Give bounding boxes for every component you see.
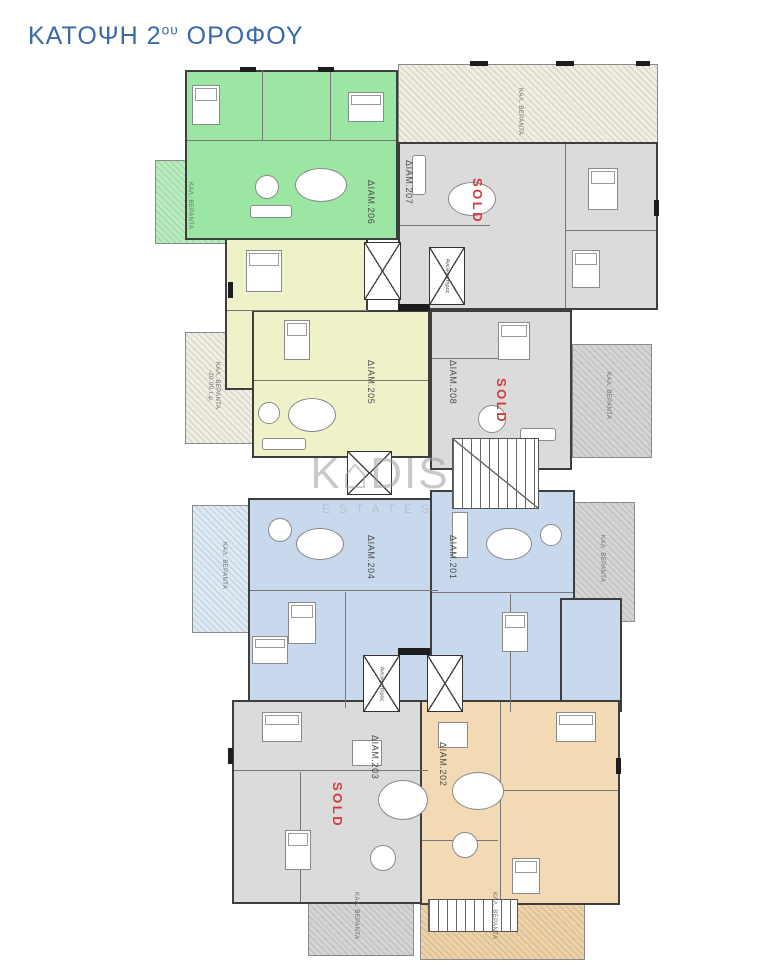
veranda-label-205: ΚΑΛ. ΒΕΡΑΝΤΑ-20.00 τ.μ. xyxy=(206,362,220,409)
sofa xyxy=(262,438,306,450)
elevator-shaft: Ανελκυστήρας xyxy=(429,247,465,305)
window-tick xyxy=(654,200,659,216)
title-suffix: ΟΡΟΦΟΥ xyxy=(179,22,304,50)
window-tick xyxy=(616,758,621,774)
window-tick xyxy=(556,61,574,66)
apartment-label-202: ΔΙΑΜ.202 xyxy=(438,742,448,786)
floor-plan-canvas: ΚΑΤΟΨΗ 2ου ΟΡΟΦΟΥ Ανελκυστήρα xyxy=(0,0,768,980)
wall-line xyxy=(234,770,428,771)
side-table xyxy=(370,845,396,871)
vent-shaft xyxy=(398,648,430,655)
wall-line xyxy=(345,592,346,708)
bed xyxy=(572,250,600,288)
veranda-label-202: ΚΑΛ. ΒΕΡΑΝΤΑ xyxy=(490,892,497,939)
bed xyxy=(348,92,384,122)
apartment-label-203: ΔΙΑΜ.203 xyxy=(370,735,380,779)
veranda-text: ΚΑΛ. ΒΕΡΑΝΤΑ xyxy=(187,182,193,229)
bed xyxy=(285,830,311,870)
side-table xyxy=(452,832,478,858)
bed xyxy=(498,322,530,360)
apartment-label-207: ΔΙΑΜ.207 xyxy=(404,160,414,204)
apartment-label-205: ΔΙΑΜ.205 xyxy=(366,360,376,404)
veranda-207 xyxy=(398,64,658,143)
wall-line xyxy=(250,590,438,591)
dining-table xyxy=(288,398,336,432)
watermark-logo: K⌂DIS xyxy=(285,452,475,496)
elevator-label: Ανελκυστήρας xyxy=(379,666,385,701)
side-table xyxy=(268,518,292,542)
wall-line xyxy=(400,225,490,226)
veranda-label-206: ΚΑΛ. ΒΕΡΑΝΤΑ xyxy=(186,182,193,229)
staircase-bottom xyxy=(428,899,518,932)
dining-table xyxy=(296,528,344,560)
vent-shaft xyxy=(398,304,430,311)
window-tick xyxy=(228,748,233,764)
window-tick xyxy=(240,67,256,72)
bed xyxy=(252,636,288,664)
wall-line xyxy=(565,230,656,231)
veranda-text: ΚΑΛ. ΒΕΡΑΝΤΑ xyxy=(605,372,611,419)
veranda-label-208: ΚΑΛ. ΒΕΡΑΝΤΑ xyxy=(604,372,611,419)
veranda-208 xyxy=(572,344,652,458)
watermark-subtitle: ESTATES xyxy=(285,502,475,516)
bed xyxy=(192,85,220,125)
bed xyxy=(556,712,596,742)
wall-line xyxy=(502,790,618,791)
veranda-text: ΚΑΛ. ΒΕΡΑΝΤΑ xyxy=(213,362,220,409)
bed xyxy=(512,858,540,894)
dining-table xyxy=(486,528,532,560)
veranda-text: ΚΑΛ. ΒΕΡΑΝΤΑ xyxy=(491,892,497,939)
veranda-label-204: ΚΑΛ. ΒΕΡΑΝΤΑ xyxy=(220,542,227,589)
wall-line xyxy=(432,592,573,593)
veranda-text: ΚΑΛ. ΒΕΡΑΝΤΑ xyxy=(353,892,359,939)
veranda-text: ΚΑΛ. ΒΕΡΑΝΤΑ xyxy=(221,542,227,589)
watermark: K⌂DIS ESTATES xyxy=(285,452,475,516)
sofa xyxy=(412,155,426,195)
bed xyxy=(288,602,316,644)
wall-line xyxy=(565,144,566,308)
window-tick xyxy=(470,61,488,66)
apartment-label-201: ΔΙΑΜ.201 xyxy=(448,535,458,579)
wall-line xyxy=(330,70,331,140)
veranda-area-text: -20.00 τ.μ. xyxy=(206,362,213,409)
elevator-shaft xyxy=(364,242,401,300)
bed xyxy=(262,712,302,742)
side-table xyxy=(255,175,279,199)
apartment-label-208: ΔΙΑΜ.208 xyxy=(448,360,458,404)
sold-badge-208: SOLD xyxy=(494,378,509,424)
sofa xyxy=(250,205,292,218)
bed xyxy=(284,320,310,360)
dining-table xyxy=(295,168,347,202)
wall-line xyxy=(500,702,501,903)
veranda-text: ΚΑΛ. ΒΕΡΑΝΤΑ xyxy=(517,88,523,135)
veranda-text: ΚΑΛ. ΒΕΡΑΝΤΑ xyxy=(599,535,605,582)
title-superscript: ου xyxy=(162,23,179,38)
wall-line xyxy=(262,70,263,140)
side-table xyxy=(258,402,280,424)
bed xyxy=(588,168,618,210)
apartment-201-wing xyxy=(560,598,622,712)
bed xyxy=(502,612,528,652)
elevator-shaft xyxy=(427,655,463,712)
dining-table xyxy=(452,772,504,810)
veranda-label-207: ΚΑΛ. ΒΕΡΑΝΤΑ xyxy=(516,88,523,135)
side-table xyxy=(540,524,562,546)
window-tick xyxy=(228,282,233,298)
title-prefix: ΚΑΤΟΨΗ 2 xyxy=(28,22,162,50)
dining-table xyxy=(378,780,428,820)
veranda-label-201: ΚΑΛ. ΒΕΡΑΝΤΑ xyxy=(598,535,605,582)
sold-badge-203: SOLD xyxy=(330,782,345,828)
elevator-label: Ανελκυστήρας xyxy=(444,259,450,294)
apartment-label-204: ΔΙΑΜ.204 xyxy=(366,535,376,579)
wall-line xyxy=(227,310,368,311)
apartment-205-lower xyxy=(252,310,430,458)
window-tick xyxy=(318,67,334,72)
wall-line xyxy=(254,380,428,381)
page-title: ΚΑΤΟΨΗ 2ου ΟΡΟΦΟΥ xyxy=(28,22,304,51)
veranda-label-203: ΚΑΛ. ΒΕΡΑΝΤΑ xyxy=(352,892,359,939)
wall-line xyxy=(187,140,396,141)
apartment-label-206: ΔΙΑΜ.206 xyxy=(366,180,376,224)
elevator-shaft: Ανελκυστήρας xyxy=(363,655,400,712)
sold-badge-207: SOLD xyxy=(470,178,485,224)
bed xyxy=(246,250,282,292)
window-tick xyxy=(636,61,650,66)
